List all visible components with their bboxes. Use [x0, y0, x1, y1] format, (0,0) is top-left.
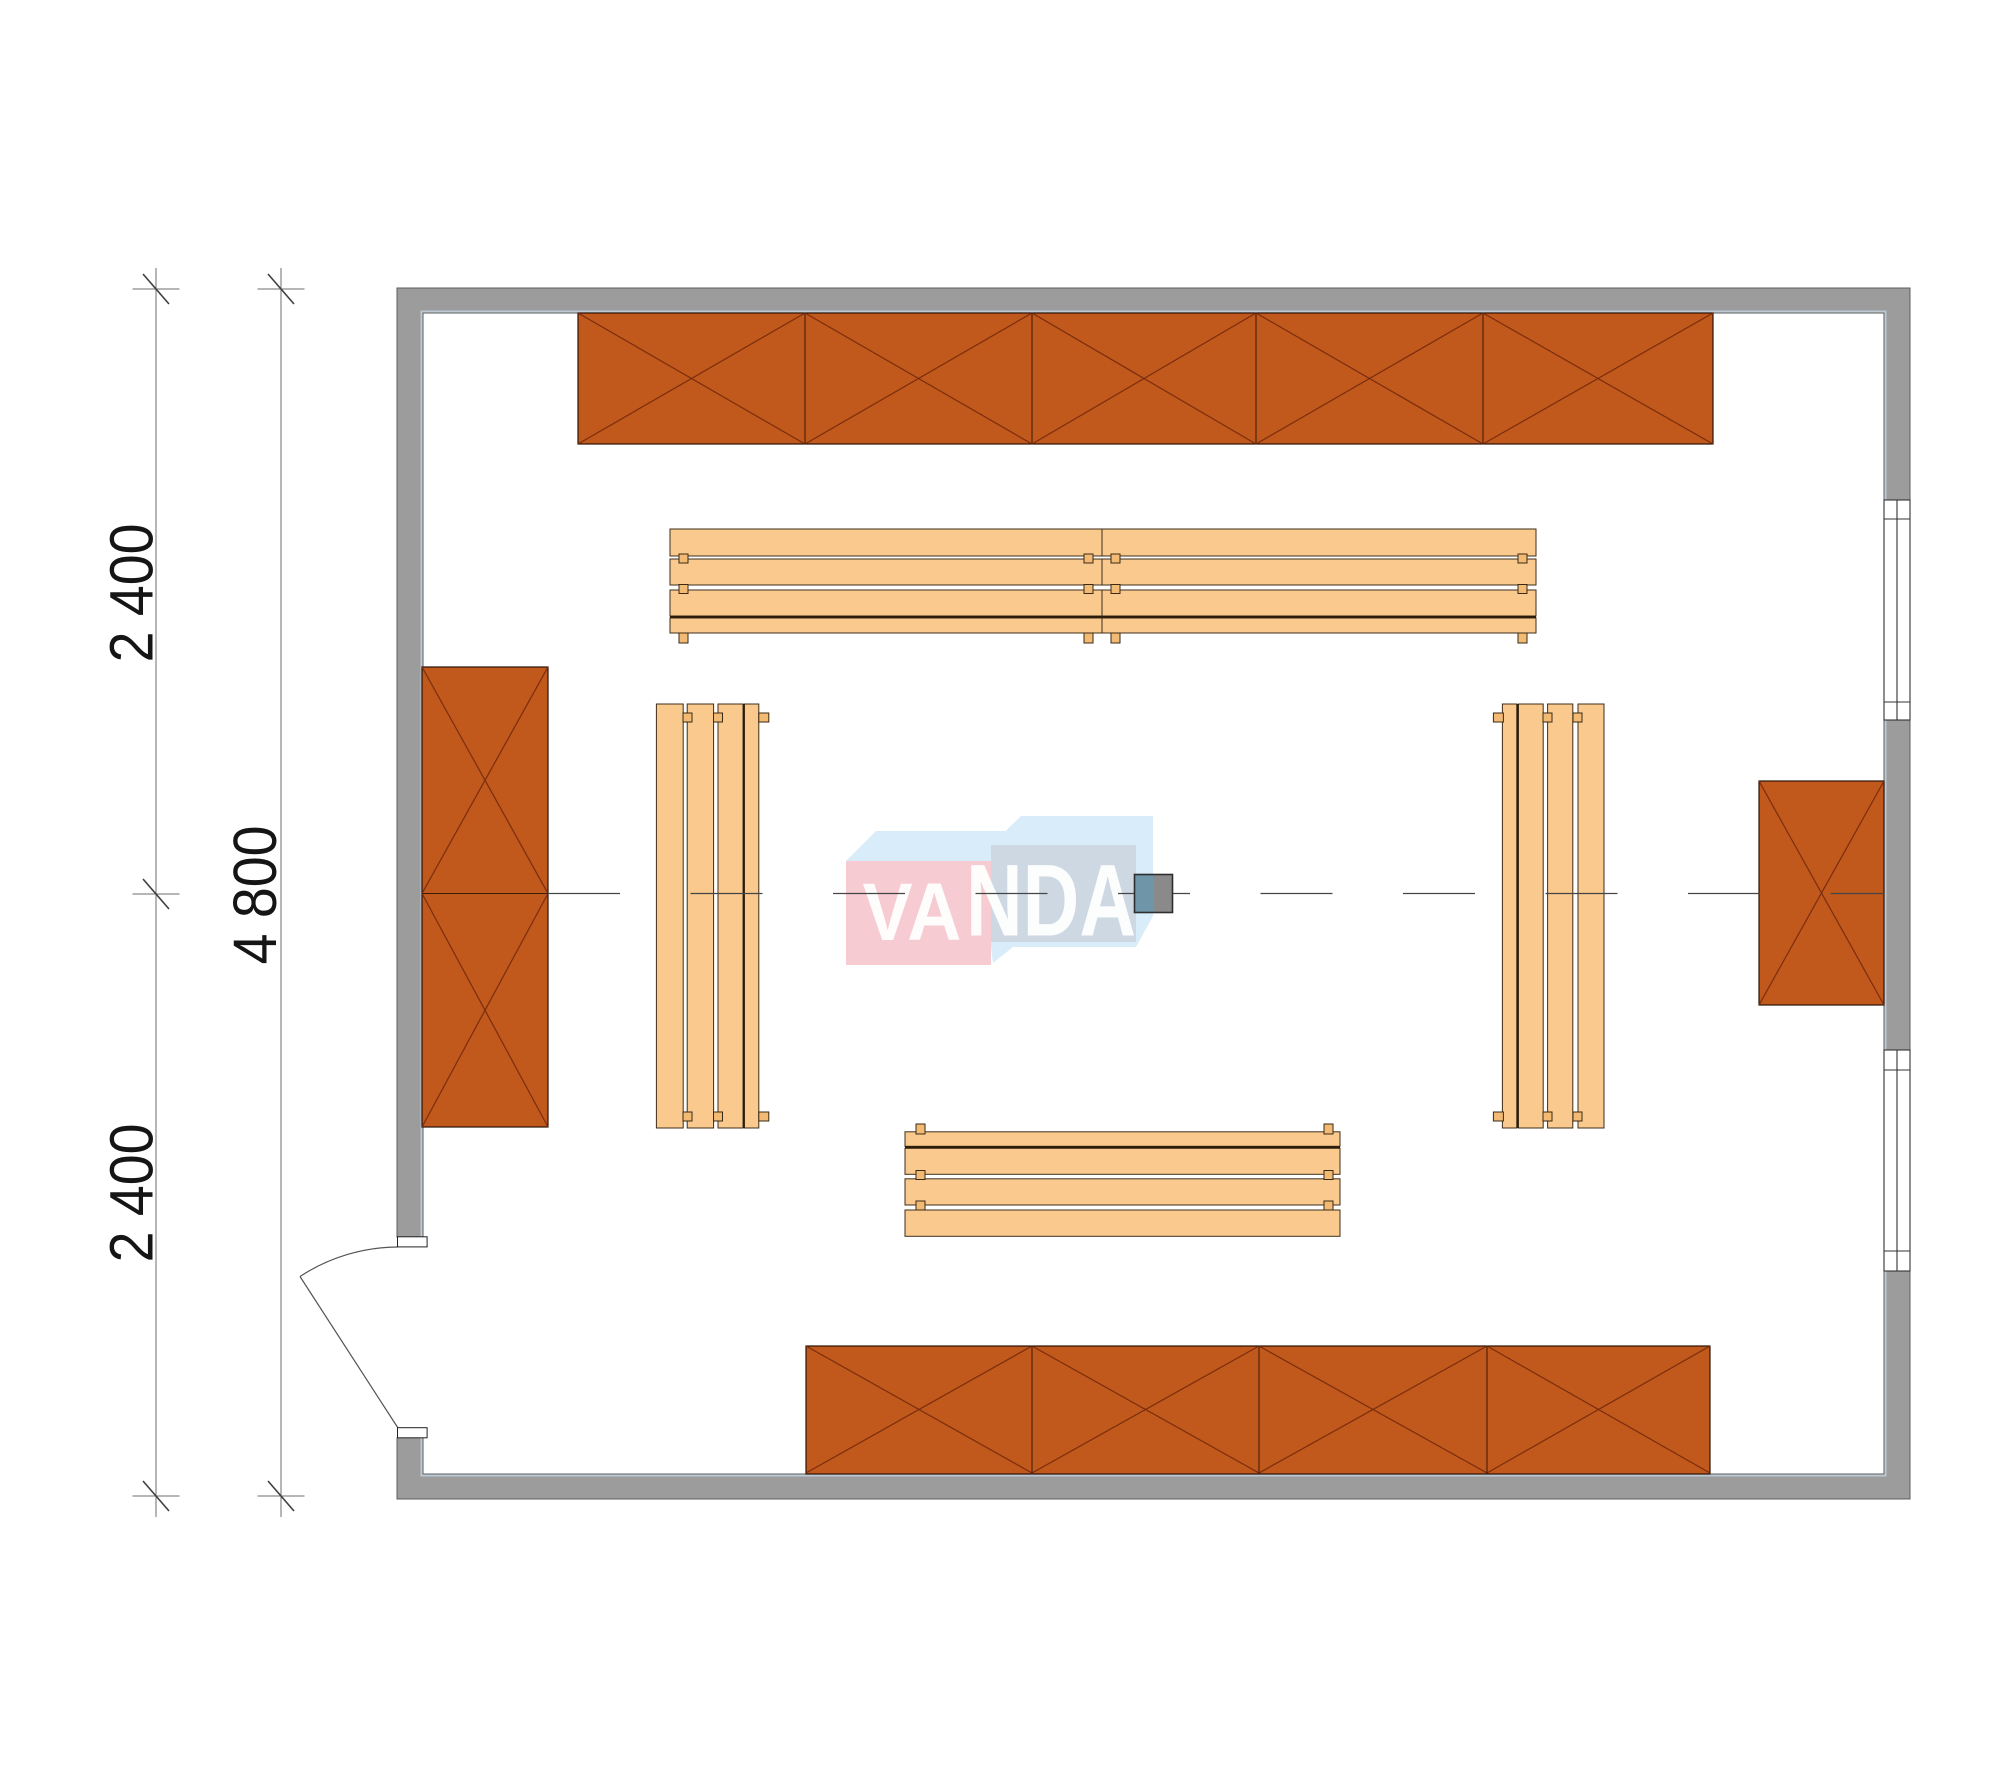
- svg-text:NDA: NDA: [966, 843, 1136, 958]
- svg-text:VA: VA: [863, 867, 962, 958]
- svg-text:2 400: 2 400: [98, 1124, 166, 1263]
- svg-text:2 400: 2 400: [98, 524, 166, 663]
- svg-text:4 800: 4 800: [222, 826, 290, 965]
